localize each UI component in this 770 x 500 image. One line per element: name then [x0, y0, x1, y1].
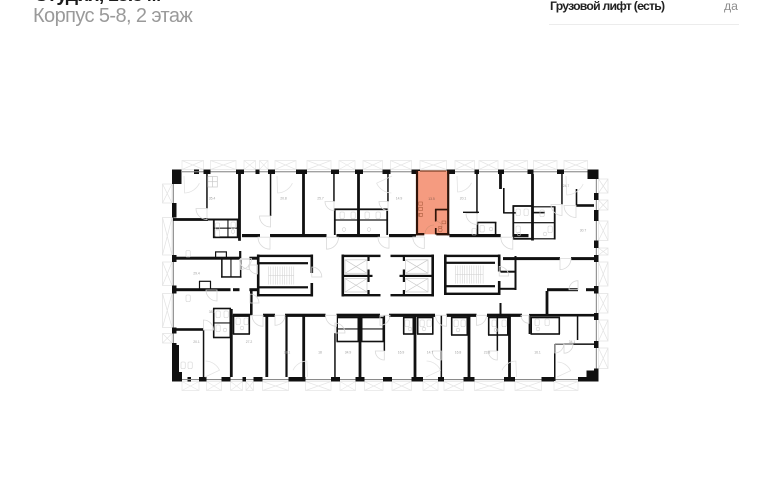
svg-text:23.8: 23.8	[484, 351, 491, 355]
svg-text:35.4: 35.4	[209, 197, 216, 201]
svg-text:28.1: 28.1	[284, 351, 291, 355]
svg-text:30.7: 30.7	[580, 229, 587, 233]
svg-text:13.5: 13.5	[428, 197, 435, 201]
svg-text:34.1: 34.1	[569, 340, 576, 344]
svg-text:29.4: 29.4	[193, 272, 200, 276]
svg-text:16.9: 16.9	[398, 351, 405, 355]
svg-text:20.1: 20.1	[460, 197, 467, 201]
svg-text:24.7: 24.7	[563, 184, 570, 188]
svg-text:38.1: 38.1	[209, 310, 216, 314]
svg-text:18: 18	[318, 351, 322, 355]
svg-text:14.9: 14.9	[396, 197, 403, 201]
svg-text:16.1: 16.1	[534, 351, 541, 355]
svg-text:20.8: 20.8	[280, 197, 287, 201]
svg-text:20.1: 20.1	[193, 340, 200, 344]
svg-text:16.8: 16.8	[455, 351, 462, 355]
svg-text:34.9: 34.9	[345, 351, 352, 355]
svg-text:25.7: 25.7	[317, 197, 324, 201]
svg-text:14.7: 14.7	[427, 351, 434, 355]
svg-text:27.2: 27.2	[246, 340, 253, 344]
